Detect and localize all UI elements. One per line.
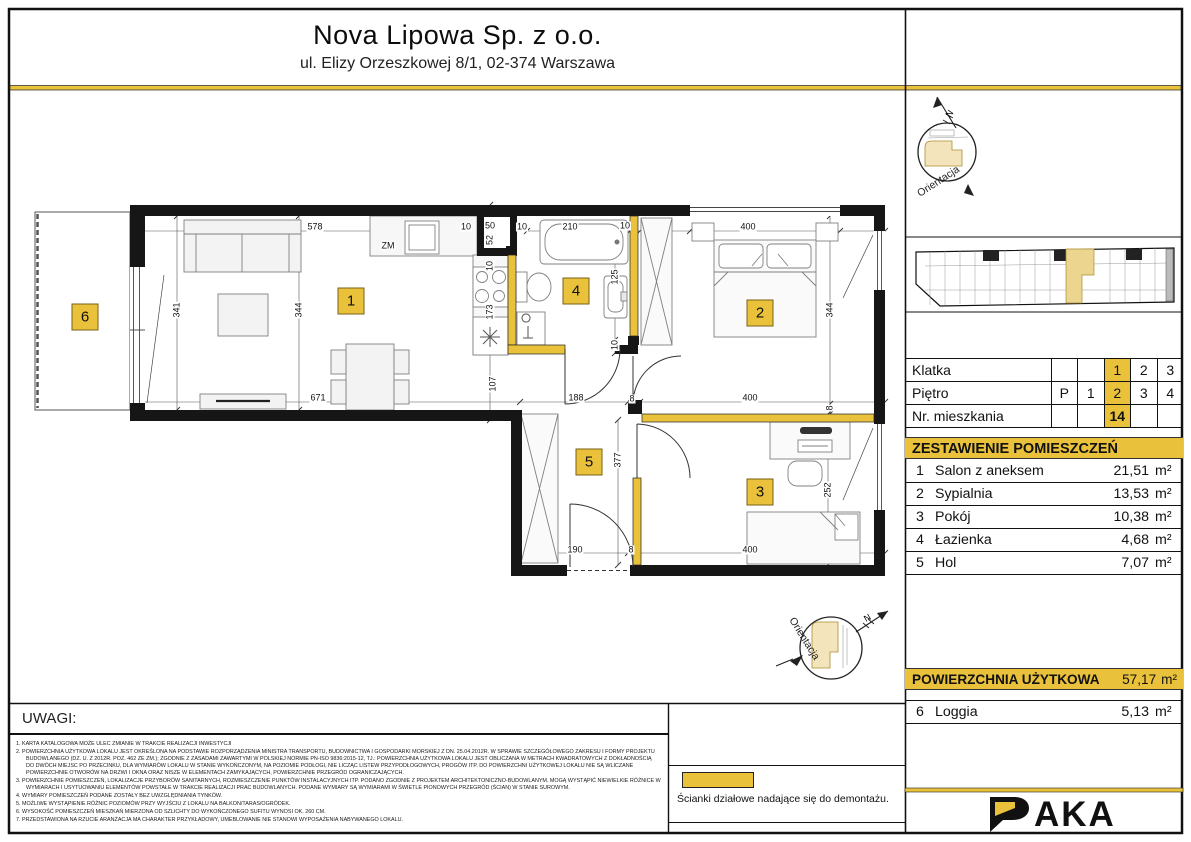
- dimension-label: 50: [484, 222, 496, 231]
- room-row: 3Pokój10,38m²: [905, 506, 1183, 529]
- room-row: 2Sypialnia13,53m²: [905, 483, 1183, 506]
- room-row: 4Łazienka4,68m²: [905, 529, 1183, 552]
- location-cell: 2: [1130, 359, 1157, 381]
- location-cell: 4: [1157, 382, 1184, 404]
- usable-area-value: 57,17: [1122, 669, 1156, 689]
- dimension-label: 344: [295, 301, 304, 318]
- room-area: 4,68: [1107, 529, 1149, 551]
- room-area-unit: m²: [1149, 460, 1183, 482]
- dimension-label: 8: [627, 546, 634, 555]
- location-table: Klatka123PiętroP1234Nr. mieszkania14: [905, 358, 1183, 428]
- room-name: Pokój: [935, 506, 1107, 528]
- room-number-badge: 4: [563, 278, 590, 305]
- note-item: 2. POWIERZCHNIA UŻYTKOWA LOKALU JEST OKR…: [16, 749, 661, 777]
- room-number: 4: [905, 529, 935, 551]
- dimension-label: 10: [619, 222, 631, 231]
- location-row: PiętroP1234: [905, 382, 1183, 405]
- room-name: Łazienka: [935, 529, 1107, 551]
- room-number: 5: [905, 552, 935, 574]
- room-number: 2: [905, 483, 935, 505]
- page-title: Nova Lipowa Sp. z o.o.: [10, 20, 905, 51]
- room-number-badge: 5: [576, 449, 603, 476]
- usable-area-label: POWIERZCHNIA UŻYTKOWA: [912, 669, 1122, 689]
- usable-area-bar: POWIERZCHNIA UŻYTKOWA 57,17 m²: [905, 668, 1183, 690]
- location-cell: [1077, 405, 1104, 427]
- location-cell: 1: [1104, 359, 1131, 381]
- location-cell: P: [1051, 382, 1078, 404]
- dimension-label: 400: [741, 394, 758, 403]
- location-cell: [1130, 405, 1157, 427]
- dimension-label: 578: [306, 223, 323, 232]
- dimension-label: 377: [614, 451, 623, 468]
- room-row: 6Loggia5,13m²: [905, 701, 1183, 724]
- room-number-badge: 6: [72, 304, 99, 331]
- room-area: 13,53: [1107, 483, 1149, 505]
- room-name: Hol: [935, 552, 1107, 574]
- room-area: 5,13: [1107, 701, 1149, 723]
- location-cell: [1051, 359, 1078, 381]
- dimension-label: 125: [611, 268, 620, 285]
- location-row: Klatka123: [905, 359, 1183, 382]
- room-schedule: 1Salon z aneksem21,51m²2Sypialnia13,53m²…: [905, 460, 1183, 575]
- room-name: Sypialnia: [935, 483, 1107, 505]
- room-number-badge: 3: [747, 479, 774, 506]
- room-name: Salon z aneksem: [935, 460, 1107, 482]
- note-item: 3. POWIERZCHNIE POMIESZCZEŃ, LOKALIZACJE…: [16, 778, 661, 792]
- notes-title: UWAGI:: [10, 703, 668, 734]
- location-cell: [1051, 405, 1078, 427]
- dimension-label: ZM: [381, 242, 396, 251]
- room-number: 1: [905, 460, 935, 482]
- room-area-unit: m²: [1149, 552, 1183, 574]
- dimension-label: 10: [516, 223, 528, 232]
- dimension-label: 400: [739, 223, 756, 232]
- location-row-label: Klatka: [905, 359, 1051, 381]
- dimension-label: 8: [628, 395, 635, 404]
- location-cell: 14: [1104, 405, 1131, 427]
- dimension-label: 10: [460, 223, 472, 232]
- location-cell: [1157, 405, 1184, 427]
- note-item: 7. PRZEDSTAWIONA NA RZUCIE ARANŻACJA MA …: [16, 817, 661, 824]
- room-schedule-header: ZESTAWIENIE POMIESZCZEŃ: [905, 437, 1183, 459]
- dimension-label: 210: [561, 223, 578, 232]
- location-cell: 1: [1077, 382, 1104, 404]
- note-item: 4. WYMIARY POMIESZCZEŃ PODANE ZOSTAŁY BE…: [16, 793, 661, 800]
- room-row: 5Hol7,07m²: [905, 552, 1183, 575]
- room-area: 10,38: [1107, 506, 1149, 528]
- room-area-unit: m²: [1149, 506, 1183, 528]
- notes-list: 1. KARTA KATALOGOWA MOŻE ULEC ZMIANIE W …: [16, 741, 661, 825]
- legend-swatch: [682, 772, 754, 788]
- room-row: 1Salon z aneksem21,51m²: [905, 460, 1183, 483]
- dimension-label: 400: [741, 546, 758, 555]
- room-area: 7,07: [1107, 552, 1149, 574]
- legend-text: Ścianki działowe nadające się do demonta…: [677, 793, 905, 805]
- partition-legend: Ścianki działowe nadające się do demonta…: [668, 765, 905, 823]
- note-item: 1. KARTA KATALOGOWA MOŻE ULEC ZMIANIE W …: [16, 741, 661, 748]
- dimension-label: 173: [486, 303, 495, 320]
- location-cell: 3: [1157, 359, 1184, 381]
- room-number: 3: [905, 506, 935, 528]
- dimension-label: 344: [826, 301, 835, 318]
- location-cell: 2: [1104, 382, 1131, 404]
- location-cell: [1077, 359, 1104, 381]
- dimension-label: 52: [486, 234, 495, 246]
- room-number-badge: 1: [338, 288, 365, 315]
- note-item: 5. MOŻLIWE WYSTĄPIENIE RÓŻNIC POZIOMÓW P…: [16, 801, 661, 808]
- room-number-badge: 2: [747, 300, 774, 327]
- dimension-label: 188: [567, 394, 584, 403]
- room-area-unit: m²: [1149, 529, 1183, 551]
- room-area-unit: m²: [1149, 701, 1183, 723]
- dimension-label: 8: [826, 404, 835, 411]
- loggia-row: 6Loggia5,13m²: [905, 700, 1183, 724]
- location-row-label: Piętro: [905, 382, 1051, 404]
- location-row: Nr. mieszkania14: [905, 405, 1183, 428]
- company-address: ul. Elizy Orzeszkowej 8/1, 02-374 Warsza…: [10, 55, 905, 73]
- dimension-label: 341: [173, 301, 182, 318]
- dimension-label: 252: [824, 481, 833, 498]
- room-number: 6: [905, 701, 935, 723]
- room-area: 21,51: [1107, 460, 1149, 482]
- dimension-label: 107: [489, 375, 498, 392]
- usable-area-unit: m²: [1156, 669, 1177, 689]
- dimension-label: 190: [566, 546, 583, 555]
- dimension-label: 671: [309, 394, 326, 403]
- location-row-label: Nr. mieszkania: [905, 405, 1051, 427]
- dimension-label: 10: [611, 339, 620, 351]
- location-cell: 3: [1130, 382, 1157, 404]
- dimension-label: 10: [486, 260, 495, 272]
- room-name: Loggia: [935, 701, 1107, 723]
- note-item: 6. WYSOKOŚĆ POMIESZCZEŃ MIESZKAŃ MIERZON…: [16, 809, 661, 816]
- room-area-unit: m²: [1149, 483, 1183, 505]
